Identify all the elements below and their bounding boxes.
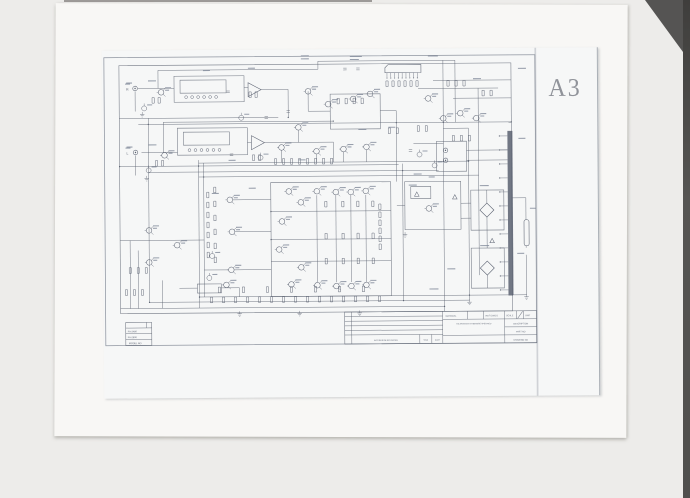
model-row-1: FA-2480 — [128, 330, 138, 333]
model-table: FA-2480 FA-2600 MODEL NO — [128, 330, 142, 345]
model-row-3: MODEL NO — [129, 342, 142, 345]
sign-label: SIGN — [424, 340, 429, 342]
scanned-schematic-page: R L MATERIAL REF DWG'S SCALE UNIT TOLERA… — [0, 0, 690, 498]
scan-edge-artifact — [64, 0, 372, 2]
ref-dwgs-label: REF DWG'S — [486, 315, 499, 317]
model-row-2: FA-2600 — [128, 336, 138, 339]
schematic-drawing: R L MATERIAL REF DWG'S SCALE UNIT TOLERA… — [102, 47, 599, 398]
scan-right-edge-shadow — [683, 0, 690, 498]
material-label: MATERIAL — [446, 315, 458, 318]
revisions-label: ALTERATION REVISIONS — [374, 339, 398, 342]
title-block: MATERIAL REF DWG'S SCALE UNIT TOLERANCES… — [374, 314, 531, 342]
input-terminal-labels: R L — [126, 88, 129, 156]
part-no-label: PART NO — [516, 330, 526, 333]
description-label: DESCRIPTION — [513, 323, 528, 325]
scan-corner-shadow — [645, 0, 683, 52]
schematic-sheet: R L MATERIAL REF DWG'S SCALE UNIT TOLERA… — [102, 47, 600, 398]
input-label-left: L — [126, 152, 128, 156]
input-label-right: R — [126, 88, 129, 92]
circuit-graphics — [104, 54, 537, 346]
drawing-no-label: DRAWING NO — [514, 339, 529, 342]
unit-label: UNIT — [525, 315, 531, 317]
scale-label: SCALE — [506, 314, 514, 317]
date-label: DATE — [435, 339, 441, 342]
tolerance-note: TOLERANCES OTHERWISE SPECIFIED — [456, 322, 492, 325]
paper-size-stamp: A3 — [540, 75, 590, 104]
